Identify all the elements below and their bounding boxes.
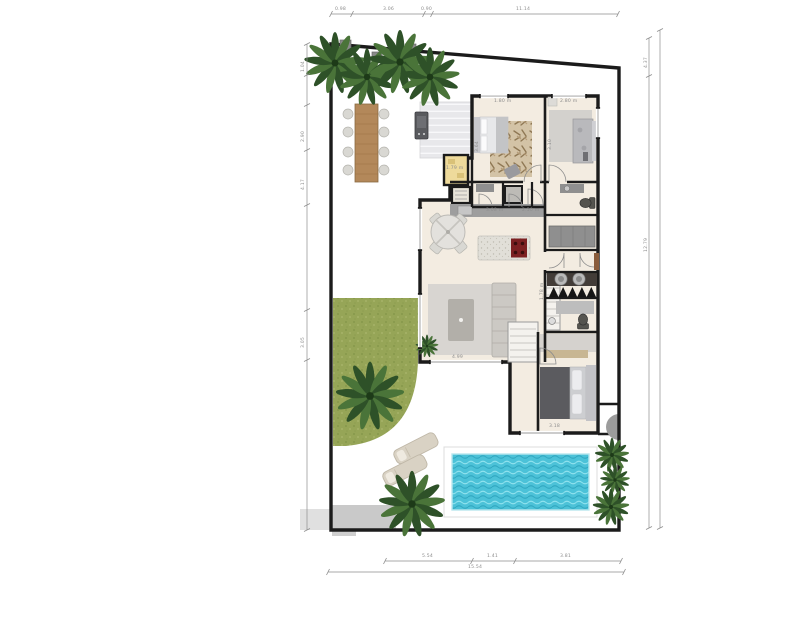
entry-doormat [452, 187, 470, 203]
nightstand [548, 97, 557, 106]
dim-label: 11.14 [516, 7, 530, 12]
laundry [547, 272, 597, 297]
room-dim-label: 2.50 m [522, 208, 539, 213]
dim-label: 4.37 [644, 57, 649, 68]
room-dim-label: 1.79 m [446, 166, 463, 171]
master-bed [540, 365, 596, 421]
dining-table [429, 212, 468, 254]
room-dim-label: 4.99 [452, 355, 463, 360]
dim-label: 4.17 [301, 179, 306, 190]
room-dim-label: 1.80 m [494, 99, 511, 104]
master-rug [540, 334, 596, 352]
master-closet [508, 322, 538, 362]
dim-label: 3.06 [383, 7, 394, 12]
dim-label: 12.79 [644, 238, 649, 252]
room-dim-label: 1.78 m [540, 283, 545, 300]
dim-label: 0.98 [335, 7, 346, 12]
living-room [415, 283, 516, 357]
dim-label: 3.05 [301, 337, 306, 348]
kitchen-island [478, 236, 530, 260]
floor-plan-canvas: 0.98 3.06 0.90 11.14 1.04 2.90 4.17 3.05… [0, 0, 800, 640]
dim-label: 2.90 [301, 131, 306, 142]
wardrobe [549, 226, 595, 247]
dim-label: 3.81 [560, 554, 571, 559]
pool-water [452, 454, 589, 510]
deck-terrace [415, 102, 472, 158]
bbq-grill [415, 112, 428, 139]
room-dim-label: 3.08 m [486, 208, 503, 213]
swimming-pool [444, 447, 597, 517]
bedroom-2-bed [573, 119, 596, 163]
room-dim-label: 3.10 [548, 139, 553, 150]
dim-label: 1.04 [301, 61, 306, 72]
dim-label: 5.54 [422, 554, 433, 559]
room-dim-label: 3.64 [475, 141, 480, 152]
floor-plan-graphic [0, 0, 800, 640]
dim-label: 1.41 [487, 554, 498, 559]
room-dim-label: 2.80 m [560, 99, 577, 104]
dim-label: 0.90 [421, 7, 432, 12]
master-bedroom [540, 334, 596, 421]
room-dim-label: 3.18 [549, 424, 560, 429]
dim-label: 15.54 [468, 565, 482, 570]
cooktop [511, 239, 527, 258]
wood-entry-door [594, 253, 599, 270]
